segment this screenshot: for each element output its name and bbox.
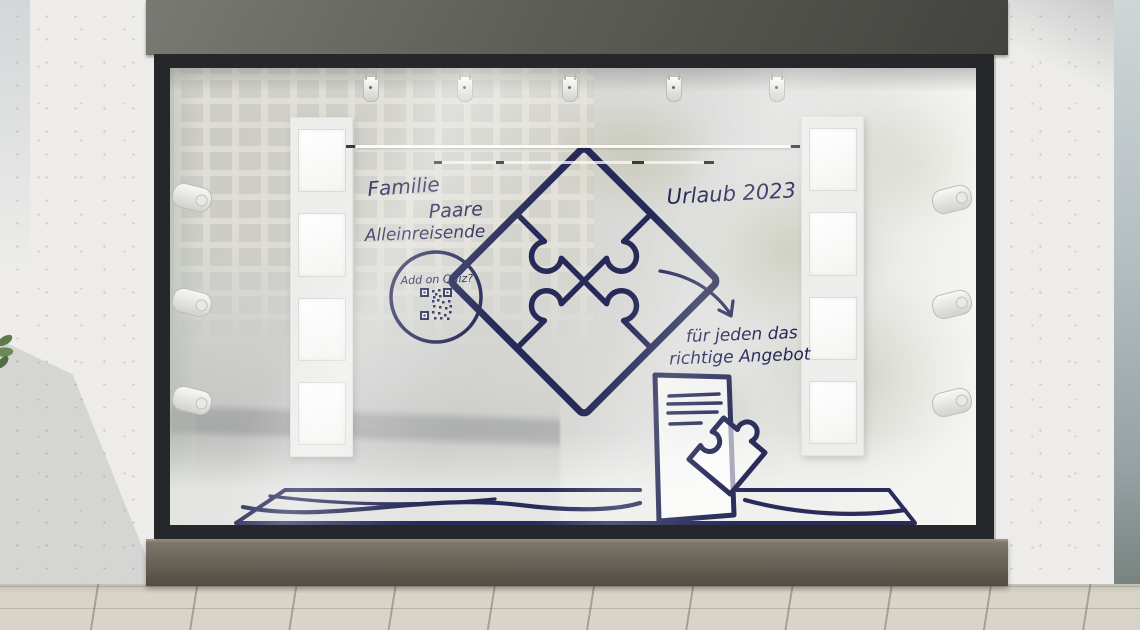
storefront-scene: Familie Paare Alleinreisende Urlaub 2023…: [0, 0, 1140, 630]
sidewalk-pavement: [0, 584, 1140, 630]
glass-reflection-gloss: [170, 68, 976, 525]
storefront-fascia: [146, 0, 1008, 55]
window-base-sill: [146, 539, 1008, 586]
shaded-wall-strip: [1114, 0, 1140, 586]
